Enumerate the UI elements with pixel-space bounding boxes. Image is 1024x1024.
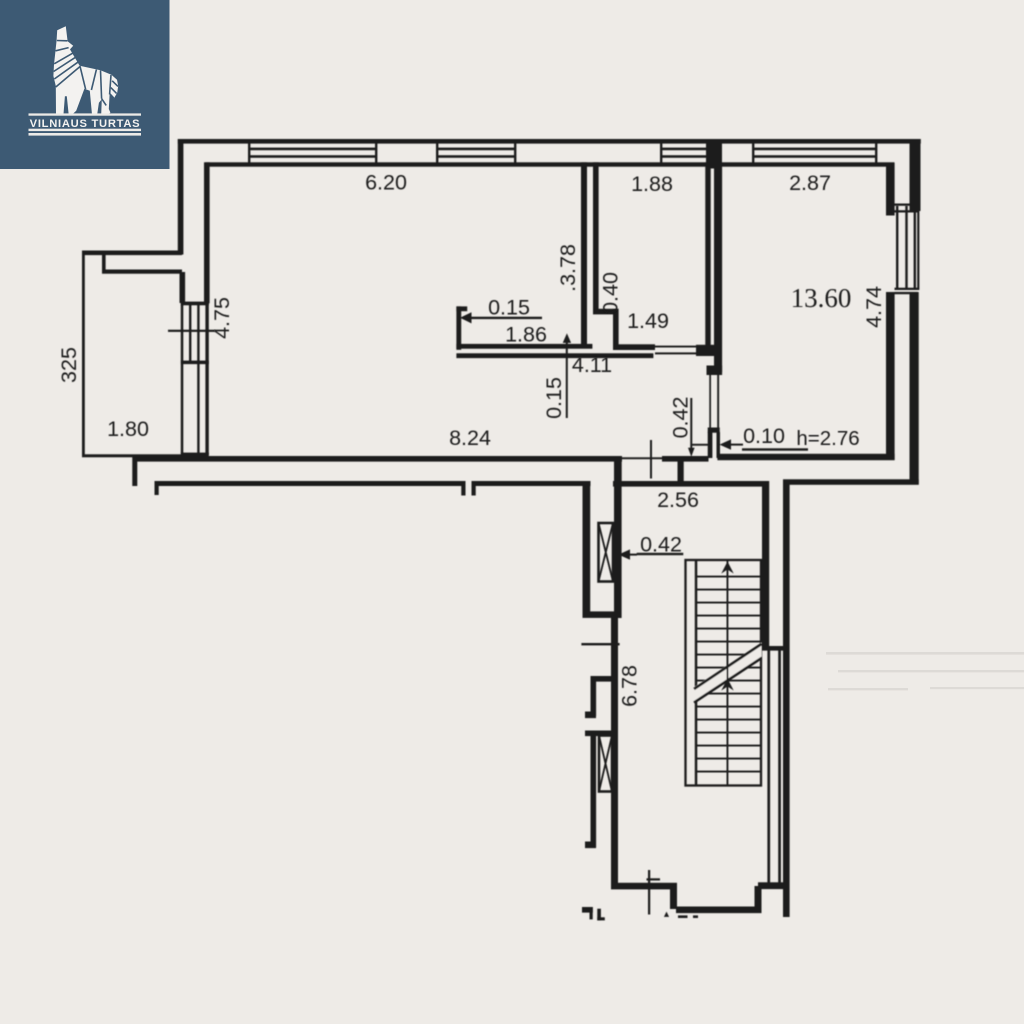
svg-text:4.11: 4.11 [572,353,612,377]
svg-text:1.88: 1.88 [631,172,673,196]
svg-text:2.87: 2.87 [789,171,831,195]
svg-text:1.80: 1.80 [107,417,149,441]
svg-text:6.20: 6.20 [365,171,407,195]
svg-text:6.78: 6.78 [618,665,642,707]
svg-text:2.56: 2.56 [657,488,699,512]
svg-text:0.15: 0.15 [488,296,530,320]
svg-text:.3.78: .3.78 [556,244,580,292]
svg-text:4.75: 4.75 [210,297,234,339]
svg-text:8.24: 8.24 [449,426,491,450]
svg-text:4.74: 4.74 [862,286,886,328]
svg-text:13.60: 13.60 [791,283,852,313]
svg-text:325: 325 [57,347,81,383]
svg-text:0.15: 0.15 [542,377,566,419]
svg-text:1.86: 1.86 [505,323,547,347]
svg-text:h=2.76: h=2.76 [796,427,859,450]
svg-text:0.42: 0.42 [669,397,693,439]
svg-text:VILNIAUS TURTAS: VILNIAUS TURTAS [30,118,141,130]
svg-text:1.49: 1.49 [627,309,669,333]
svg-text:0.42: 0.42 [640,533,682,557]
svg-text:0.10: 0.10 [743,424,785,448]
svg-text:0.40: 0.40 [599,272,623,314]
